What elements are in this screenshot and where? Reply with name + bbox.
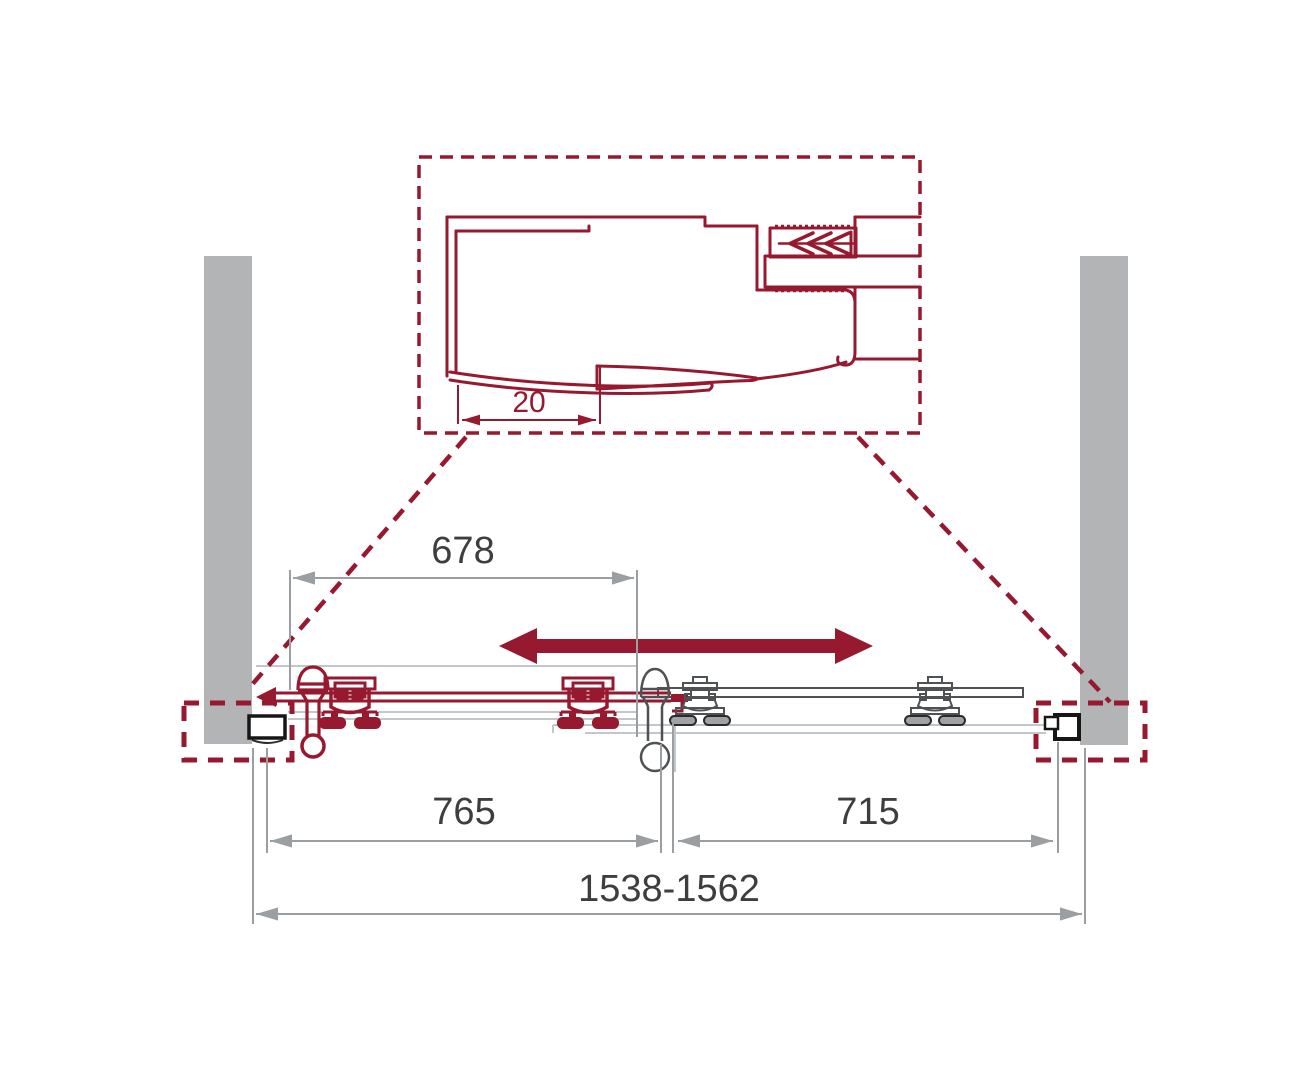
dimension-overall-label: 1538-1562 <box>578 868 760 910</box>
detail-connector-right <box>858 437 1110 702</box>
left-wall <box>204 256 252 744</box>
seal-fin-upper <box>597 366 756 378</box>
roller-pad <box>353 689 362 698</box>
right-wall <box>1080 256 1128 745</box>
chevron-expansion-anchor-icon <box>779 232 853 255</box>
roller-wheel <box>557 717 584 729</box>
roller-wheel <box>592 717 619 729</box>
roller-wheel <box>905 716 931 725</box>
roller-pad <box>576 689 585 698</box>
roller-wheel <box>354 717 381 729</box>
profile-section-drawing <box>447 217 920 393</box>
dimension-715 <box>673 722 1058 853</box>
right-wall-profile-notch <box>1045 717 1058 729</box>
roller-wheel <box>704 716 730 725</box>
dimension-678-label: 678 <box>431 530 494 572</box>
anchor-plate-lines <box>765 256 920 287</box>
detail-view: 20 <box>419 157 920 433</box>
dimension-20-label: 20 <box>512 386 545 419</box>
roller-pad <box>338 689 347 698</box>
dimension-715-label: 715 <box>836 791 899 833</box>
dimension-765-label: 765 <box>432 791 495 833</box>
roller-pad <box>591 689 600 698</box>
slide-direction-arrow <box>499 628 873 664</box>
knob-ball <box>302 735 324 757</box>
fixed-panel-knob <box>641 669 669 771</box>
left-profile-seal <box>252 740 283 743</box>
sliding-roller <box>557 678 619 729</box>
left-wall-profile <box>249 716 285 738</box>
profile-top <box>447 217 757 226</box>
roller-wheel <box>939 716 965 725</box>
knob-stem <box>648 706 662 741</box>
shower-door-diagram: 20 678 765 715 1538-156 <box>0 0 1300 1083</box>
fixed-roller <box>905 677 965 725</box>
technical-drawing-canvas: 20 678 765 715 1538-156 <box>0 0 1300 1083</box>
knob-ball <box>641 743 669 771</box>
profile-top-inner <box>456 226 589 231</box>
seal-to-wall-curve <box>756 362 846 379</box>
roller-wheel <box>319 717 346 729</box>
walls <box>204 256 1128 745</box>
fixed-panel <box>641 669 965 771</box>
